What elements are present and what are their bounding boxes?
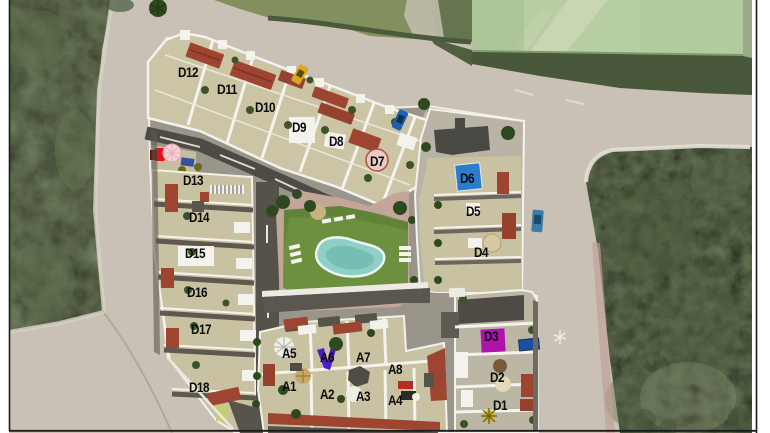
svg-text:A2: A2 [320, 386, 335, 402]
svg-text:D16: D16 [187, 284, 208, 300]
svg-text:D17: D17 [191, 321, 212, 337]
svg-text:D2: D2 [490, 369, 505, 385]
svg-text:D1: D1 [493, 397, 508, 413]
svg-text:A4: A4 [388, 392, 403, 408]
svg-text:D4: D4 [474, 244, 489, 260]
svg-text:D5: D5 [466, 203, 481, 219]
svg-text:D8: D8 [329, 133, 344, 149]
svg-text:D13: D13 [183, 172, 204, 188]
svg-text:A7: A7 [356, 349, 371, 365]
svg-text:D11: D11 [217, 81, 238, 97]
svg-text:D10: D10 [255, 99, 276, 115]
svg-text:A5: A5 [282, 345, 297, 361]
svg-text:D15: D15 [185, 245, 206, 261]
svg-text:D12: D12 [178, 64, 199, 80]
svg-text:D7: D7 [370, 153, 385, 169]
svg-text:A3: A3 [356, 388, 371, 404]
svg-text:D3: D3 [484, 328, 499, 344]
svg-text:D18: D18 [189, 379, 210, 395]
svg-text:A6: A6 [320, 349, 335, 365]
svg-text:A1: A1 [282, 378, 297, 394]
svg-text:D6: D6 [460, 170, 475, 186]
svg-text:D9: D9 [292, 119, 307, 135]
svg-text:A8: A8 [388, 361, 403, 377]
svg-text:D14: D14 [189, 209, 210, 225]
